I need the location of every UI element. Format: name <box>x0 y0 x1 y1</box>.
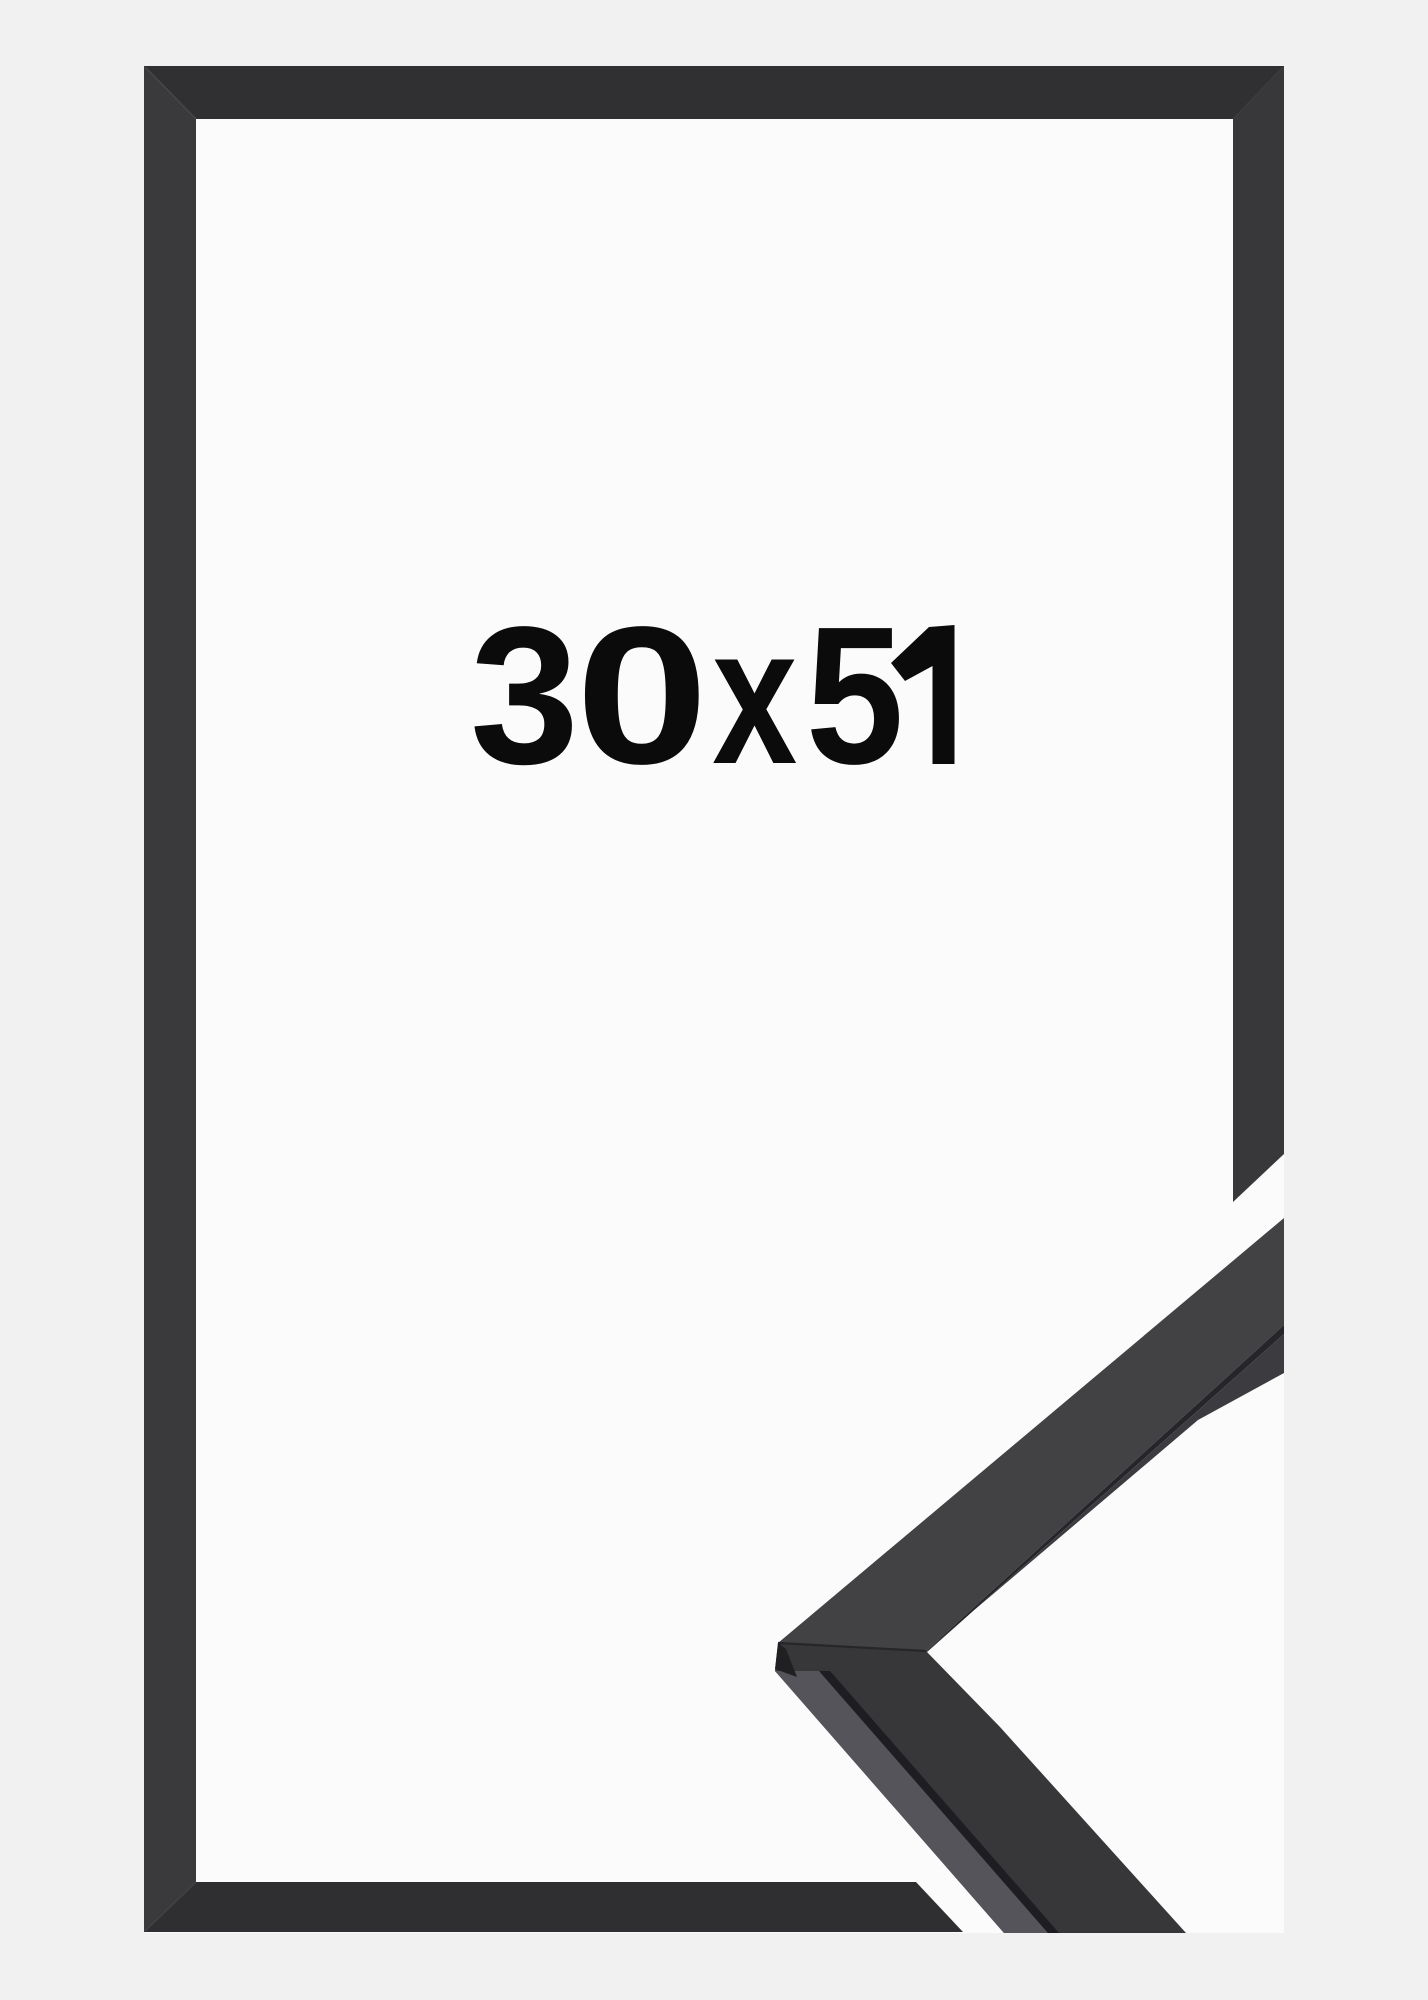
svg-text:x: x <box>712 587 797 806</box>
svg-text:0: 0 <box>576 586 709 805</box>
svg-text:3: 3 <box>470 586 579 805</box>
svg-text:5: 5 <box>806 585 904 805</box>
